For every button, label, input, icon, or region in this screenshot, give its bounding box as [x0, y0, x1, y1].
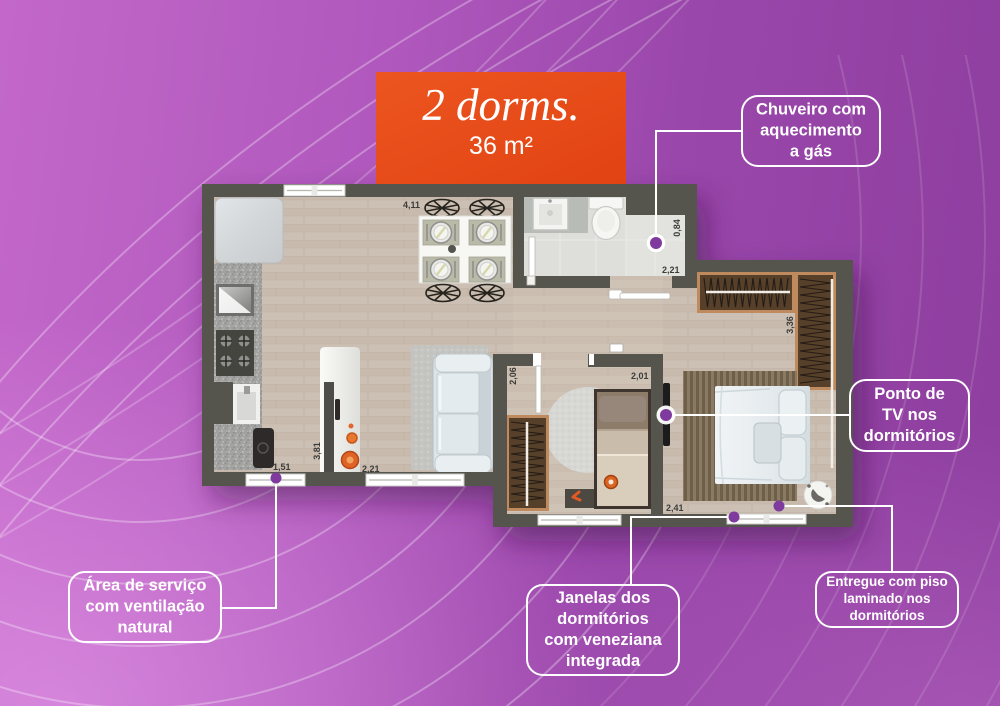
svg-text:TV nos: TV nos — [882, 406, 937, 424]
svg-text:1,51: 1,51 — [273, 462, 291, 472]
svg-text:dormitórios: dormitórios — [557, 610, 649, 628]
svg-text:aquecimento: aquecimento — [760, 122, 862, 140]
svg-text:com ventilação: com ventilação — [85, 598, 204, 616]
svg-text:4,11: 4,11 — [403, 200, 420, 210]
svg-text:Entregue com piso: Entregue com piso — [826, 574, 948, 589]
svg-text:Chuveiro com: Chuveiro com — [756, 101, 866, 119]
svg-text:Área de serviço: Área de serviço — [84, 576, 207, 595]
svg-text:dormitórios: dormitórios — [864, 427, 956, 445]
svg-text:2,21: 2,21 — [362, 464, 380, 474]
svg-text:integrada: integrada — [566, 652, 641, 670]
svg-text:Ponto de: Ponto de — [874, 385, 945, 403]
svg-text:2 dorms.: 2 dorms. — [422, 80, 580, 130]
svg-text:0,84: 0,84 — [672, 219, 682, 237]
svg-text:com veneziana: com veneziana — [544, 631, 662, 649]
svg-text:2,01: 2,01 — [631, 371, 649, 381]
svg-text:a gás: a gás — [790, 143, 832, 161]
svg-text:2,21: 2,21 — [662, 265, 680, 275]
svg-text:Janelas dos: Janelas dos — [556, 589, 650, 607]
svg-text:dormitórios: dormitórios — [849, 608, 924, 623]
svg-text:3,36: 3,36 — [785, 316, 795, 334]
svg-text:natural: natural — [117, 619, 172, 637]
svg-text:36 m²: 36 m² — [469, 132, 533, 160]
svg-text:2,06: 2,06 — [508, 367, 518, 385]
svg-text:2,41: 2,41 — [666, 503, 684, 513]
svg-text:laminado nos: laminado nos — [843, 591, 930, 606]
svg-text:3,81: 3,81 — [312, 442, 322, 460]
